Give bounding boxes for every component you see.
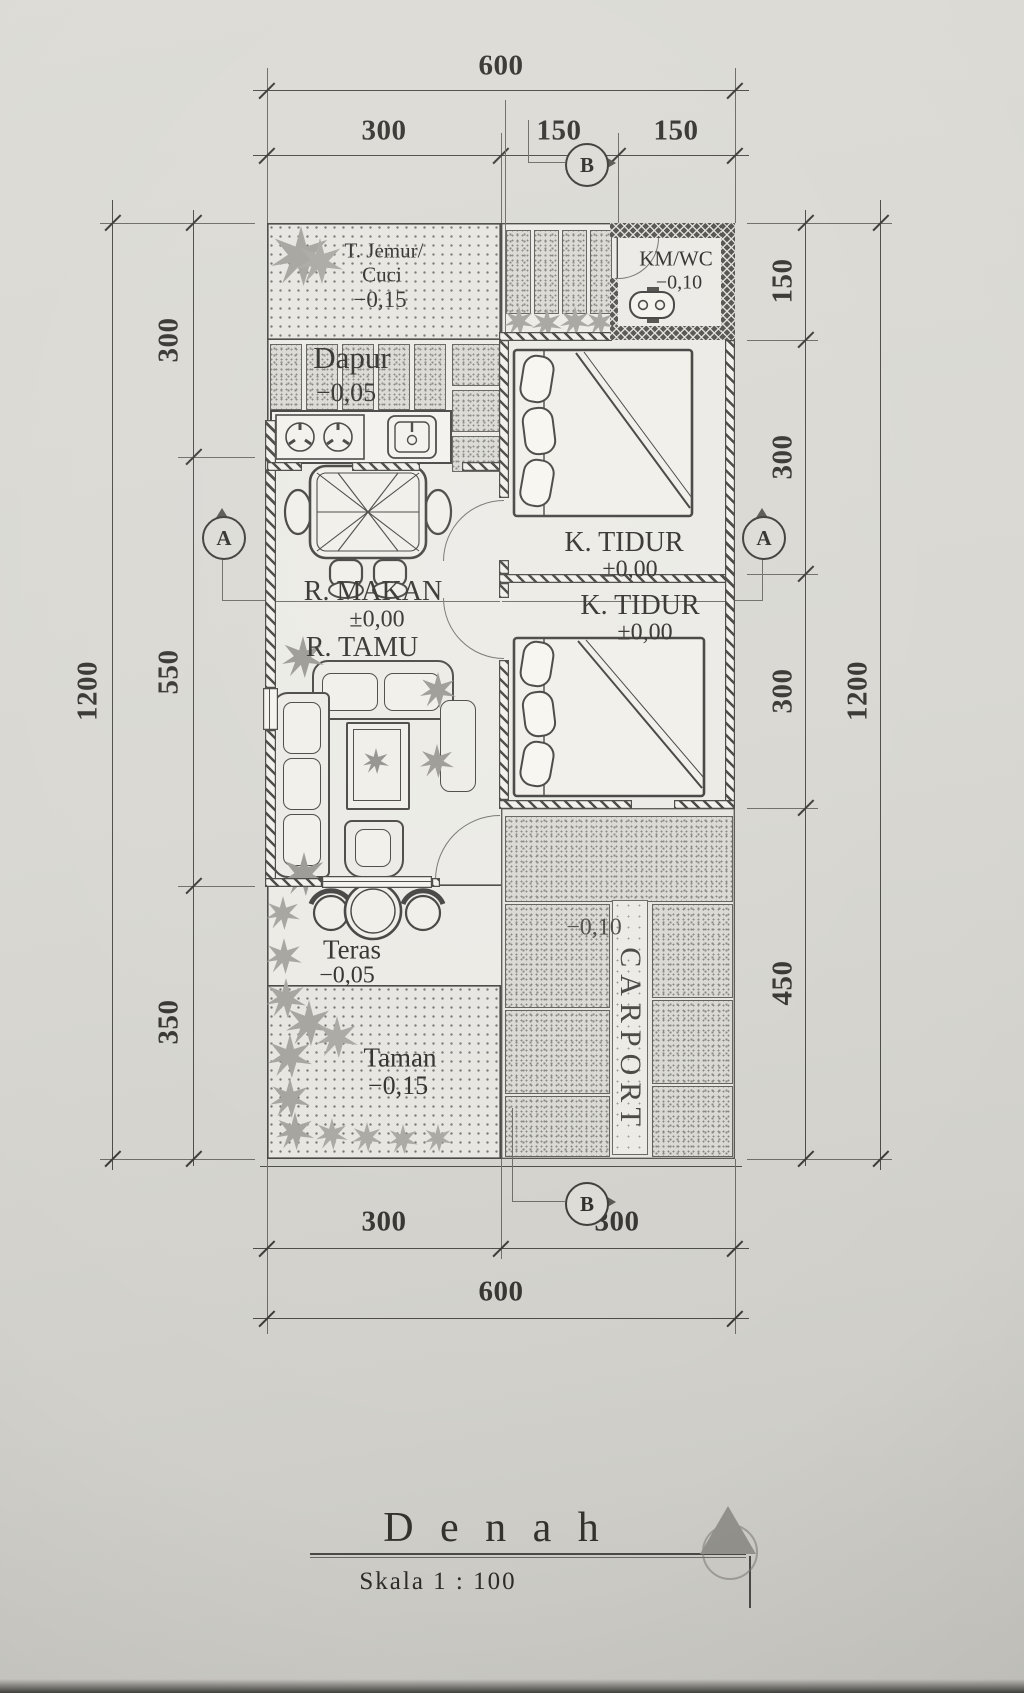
wall-segment xyxy=(432,878,440,887)
floor-plan-sheet: T. Jemur/ Cuci −0,15 Dapur −0,05 KM/WC −… xyxy=(0,0,1024,1693)
dim-right-outer: 1200 xyxy=(842,661,875,721)
shrub-icon xyxy=(352,1122,382,1152)
wall-segment xyxy=(610,326,735,340)
room-label-teras: Teras xyxy=(323,935,381,966)
carport-paving-block xyxy=(652,1000,733,1084)
kitchen-counter-block xyxy=(414,344,446,410)
wall-segment xyxy=(462,462,501,471)
wall-segment xyxy=(265,730,276,886)
shrub-icon xyxy=(296,238,344,284)
dimension-line xyxy=(112,200,113,1170)
extension-line xyxy=(747,1159,892,1160)
shrub-icon xyxy=(424,1124,452,1152)
shrub-icon xyxy=(316,1118,348,1150)
section-leader-b-bottom xyxy=(512,1201,565,1202)
room-label-tidur1: K. TIDUR xyxy=(564,527,683,559)
section-marker-b-bottom: B xyxy=(565,1182,609,1226)
dim-left-outer: 1200 xyxy=(72,661,105,721)
dim-top-seg: 150 xyxy=(537,115,582,148)
room-level-teras: −0,05 xyxy=(319,963,375,990)
wall-segment xyxy=(499,583,509,598)
drawing-title: D e n a h xyxy=(383,1504,607,1552)
section-marker-a-right: A xyxy=(742,516,786,560)
sofa-cushion xyxy=(355,829,391,867)
room-label-taman: Taman xyxy=(363,1043,436,1074)
dim-top-seg: 150 xyxy=(654,115,699,148)
north-arrow-icon xyxy=(700,1506,756,1554)
room-label-makan: R. MAKAN xyxy=(304,576,442,608)
dim-top-seg: 300 xyxy=(362,115,407,148)
dim-right-seg: 150 xyxy=(767,259,800,304)
wall-segment xyxy=(721,223,735,340)
wall-segment xyxy=(265,420,276,688)
shrub-icon xyxy=(388,1124,418,1154)
dim-left-seg: 350 xyxy=(153,1000,186,1045)
dimension-line xyxy=(805,210,806,1166)
wall-segment xyxy=(499,332,612,341)
section-line-b xyxy=(505,100,506,340)
sofa-cushion xyxy=(322,673,378,711)
wall-segment xyxy=(499,340,509,498)
dim-left-seg: 300 xyxy=(153,318,186,363)
shrub-icon xyxy=(276,1112,314,1150)
wall-segment xyxy=(610,278,618,326)
section-line-b xyxy=(528,120,529,163)
closet-unit xyxy=(534,230,559,314)
room-label-tidur2: K. TIDUR xyxy=(580,590,699,622)
armchair xyxy=(344,820,404,878)
title-underline xyxy=(310,1553,746,1555)
room-label-kmwc: KM/WC xyxy=(639,247,713,272)
dim-right-seg: 300 xyxy=(767,435,800,480)
plant-icon xyxy=(363,748,389,774)
room-level-tidur1: ±0,00 xyxy=(602,557,657,584)
plant-icon xyxy=(420,744,454,778)
stove-sink-icon xyxy=(270,410,452,464)
dim-bottom-total: 600 xyxy=(479,1276,524,1309)
bed-icon xyxy=(512,636,706,798)
title-underline xyxy=(310,1557,746,1558)
section-marker-b-top: B xyxy=(565,143,609,187)
carport-paving-block xyxy=(505,1096,610,1157)
section-leader-b-top xyxy=(528,162,565,163)
shrub-icon xyxy=(268,1034,312,1078)
room-level-jemur: −0,15 xyxy=(353,287,406,313)
wall-segment xyxy=(267,462,302,471)
kitchen-counter-block xyxy=(452,390,500,432)
kitchen-counter-block xyxy=(270,344,302,410)
extension-line xyxy=(618,133,619,223)
teras-chair-icon xyxy=(398,884,448,936)
wall-segment xyxy=(499,660,509,800)
kitchen-counter-block xyxy=(452,344,500,386)
plant-icon xyxy=(282,852,326,896)
closet-unit xyxy=(562,230,587,314)
shrub-icon xyxy=(266,896,300,930)
room-level-dapur: −0,05 xyxy=(316,378,376,408)
wall-segment xyxy=(610,223,735,238)
room-label-tamu: R. TAMU xyxy=(306,632,418,664)
extension-line xyxy=(501,1159,502,1259)
bed-icon xyxy=(512,348,694,518)
room-label-carport: CARPORT xyxy=(613,947,647,1133)
section-leader-a-right xyxy=(762,556,763,601)
room-level-taman: −0,15 xyxy=(368,1071,428,1101)
room-label-jemur: T. Jemur/ xyxy=(345,239,424,264)
drawing-scale: Skala 1 : 100 xyxy=(359,1568,516,1596)
extension-line xyxy=(100,1159,255,1160)
wall-segment xyxy=(499,560,509,574)
wall-segment xyxy=(352,462,420,471)
teras-table-icon xyxy=(342,880,404,942)
dim-left-seg: 550 xyxy=(153,650,186,695)
dim-top-total: 600 xyxy=(479,50,524,83)
dim-bottom-seg: 300 xyxy=(362,1206,407,1239)
room-level-carport: −0,10 xyxy=(566,915,622,942)
sofa-cushion xyxy=(283,758,321,810)
extension-line xyxy=(747,223,892,224)
dim-right-seg: 450 xyxy=(767,961,800,1006)
section-leader-a-right xyxy=(735,600,762,601)
shrub-icon xyxy=(316,1016,358,1058)
room-label-dapur: Dapur xyxy=(313,340,390,376)
wall-segment xyxy=(265,878,322,887)
section-marker-a-left: A xyxy=(202,516,246,560)
room-level-kmwc: −0,10 xyxy=(656,272,702,295)
dimension-line xyxy=(253,1318,749,1319)
wall-segment xyxy=(725,340,735,808)
dimension-line xyxy=(193,210,194,1166)
sofa-three-seat xyxy=(272,692,330,878)
carport-paving-block xyxy=(505,816,733,902)
sofa-cushion xyxy=(283,702,321,754)
section-leader-a-left xyxy=(222,600,268,601)
plant-icon xyxy=(420,672,456,708)
dimension-line xyxy=(253,90,749,91)
window xyxy=(322,876,432,888)
extension-line xyxy=(501,133,502,223)
dim-right-seg: 300 xyxy=(767,669,800,714)
wall-segment xyxy=(674,800,735,809)
room-label-jemur2: Cuci xyxy=(362,263,402,288)
closet-unit xyxy=(506,230,531,314)
dimension-line xyxy=(880,200,881,1170)
extension-line xyxy=(100,223,255,224)
wall-segment xyxy=(499,800,632,809)
shrub-icon xyxy=(266,938,302,974)
closet-unit xyxy=(590,230,612,314)
room-level-makan: ±0,00 xyxy=(349,607,404,634)
room-level-tidur2: ±0,00 xyxy=(617,620,672,647)
window xyxy=(263,688,278,730)
section-leader-a-left xyxy=(222,556,223,601)
carport-paving-block xyxy=(652,1086,733,1157)
carport-paving-block xyxy=(652,904,733,998)
carport-paving-block xyxy=(505,1010,610,1094)
section-line-b xyxy=(512,1108,513,1202)
